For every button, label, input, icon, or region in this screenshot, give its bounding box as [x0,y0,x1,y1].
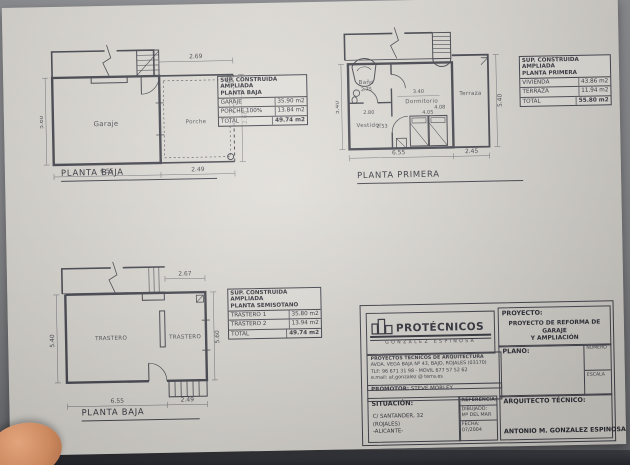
paper-sheet: 5.60 6.55 2.49 2.69 2.68 Garaje Porche P… [2,0,626,456]
room-label-porche: Porche [186,119,207,125]
dim-interior: 4.08 [434,104,445,110]
row-value: 11.94 m2 [581,87,608,96]
table-row-total: TOTAL 55.80 m2 [521,96,611,106]
room-label-trastero-2: TRASTERO [168,334,202,341]
fecha-value: 07/2004 [462,428,495,435]
dibujado-value: Mª DEL MAR [462,413,495,420]
dim-interior: 3.40 [413,89,424,95]
situacion-line: -ALICANTE- [373,427,460,436]
row-label: TOTAL [231,329,287,339]
room-label-vestidor: Vestidor [356,123,382,129]
plan-title-semisotano: PLANTA BAJA [81,406,199,421]
escala-label: ESCALA [585,370,611,379]
wall-lines [62,260,212,399]
logo-box: PROTÉCNICOS GONZALEZ ESPINOSA [366,311,496,356]
surface-table-semisotano: SUP. CONSTRUIDA AMPLIADA PLANTA SEMISOTA… [227,287,322,340]
row-label: TOTAL [523,97,577,107]
photo-frame: 5.60 6.55 2.49 2.69 2.68 Garaje Porche P… [0,0,630,465]
dim-interior: 2.75 [361,87,372,93]
row-label: TERRAZA [522,87,579,97]
table-header-line2: PLANTA BAJA [220,89,304,97]
surface-table-planta-primera: SUP. CONSTRUIDA AMPLIADA PLANTA PRIMERA … [519,54,612,107]
dim-top-porche: 2.69 [189,53,203,60]
table-header-line2: PLANTA PRIMERA [522,69,608,77]
protecnicos-logo-icon [371,317,393,335]
arquitecto-name: ANTONIO M. GONZALEZ ESPINOSA [504,426,626,435]
plano-box: PLANO: NUMERO ESCALA [498,343,612,397]
proyecto-line: Y AMPLIACIÓN [499,334,610,344]
dim-left: 5.60 [38,115,45,129]
dim-left: 5.40 [334,101,341,115]
row-label: TRASTERO 1 [231,310,290,320]
dim-left: 5.40 [49,334,56,348]
referencia-box: REFERENCIA: DIBUJADO: Mª DEL MAR FECHA: … [458,396,498,442]
row-label: GARAJE [221,98,276,108]
row-value: 13.84 m2 [277,107,304,116]
table-row-total: TOTAL 49.74 m2 [229,329,321,339]
row-value: 49.74 m2 [275,116,305,125]
row-value: 55.80 m2 [579,96,609,105]
row-label: TOTAL [221,117,273,126]
dim-right: 5.40 [496,93,503,107]
room-label-bano: Baño [358,80,374,86]
row-value: 49.74 m2 [289,329,319,338]
room-label-terraza: Terraza [458,91,481,97]
plan-title-text: PLANTA BAJA [61,168,124,179]
proyecto-box: PROYECTO: PROYECTO DE REFORMA DE GARAJE … [498,305,612,347]
dim-right: 5.60 [214,330,221,344]
row-value: 35.80 m2 [291,310,318,319]
floor-plan-semisotano: 5.40 5.60 2.67 6.55 2.49 TRASTERO TRASTE… [47,256,335,429]
dim-bottom-main: 6.55 [392,149,406,156]
room-label-garaje: Garaje [93,120,118,128]
table-header-line2: PLANTA SEMISOTANO [230,302,318,310]
dim-bottom-stair: 2.49 [181,396,195,403]
promotor-label: PROMOTOR: [371,386,409,393]
row-label: TRASTERO 2 [231,320,290,330]
plan-title-text: PLANTA PRIMERA [357,170,440,182]
room-label-trastero-1: TRASTERO [94,336,128,343]
row-label: VIVIENDA [522,78,579,88]
plan-title-text: PLANTA BAJA [81,407,144,418]
proyecto-label: PROYECTO: [499,306,610,318]
title-block: PROTÉCNICOS GONZALEZ ESPINOSA PROYECTOS … [360,300,617,446]
surface-table-planta-baja: SUP. CONSTRUIDA AMPLIADA PLANTA BAJA GAR… [217,74,308,127]
dim-top: 2.67 [178,270,192,277]
promotor-value: STEVE MORLEY [411,385,453,392]
situacion-label: SITUACIÓN: [368,397,459,409]
logo-name: PROTÉCNICOS [396,321,484,335]
dim-interior: 4.05 [422,110,433,116]
firm-line: e.mail: at.gonzalez @ terra.es [371,373,498,382]
dim-bottom-main: 6.55 [111,398,125,405]
dim-bottom-terraza: 2.45 [465,148,479,155]
dimension-lines [338,54,501,161]
floor-plan-planta-primera: 5.40 5.40 6.55 2.45 3.40 4.08 4.05 2.80 … [334,22,612,192]
arquitecto-label: ARQUITECTO TÉCNICO: [500,394,611,406]
room-label-dormitorio: Dormitorio [405,99,438,106]
row-value: 13.94 m2 [292,319,319,328]
row-value: 35.90 m2 [277,97,304,106]
situacion-box: SITUACIÓN: C/ SANTANDER, 32 (ROJALES) -A… [367,396,461,443]
row-label: PORCHE 100% [221,107,276,117]
row-value: 43.86 m2 [581,77,608,86]
dim-interior: 2.80 [363,110,374,116]
arquitecto-box: ARQUITECTO TÉCNICO: ANTONIO M. GONZALEZ … [499,393,613,440]
numero-label: NUMERO [584,344,610,370]
logo-subtext: GONZALEZ ESPINOSA [367,339,494,346]
table-row-total: TOTAL 49.74 m2 [219,116,307,126]
